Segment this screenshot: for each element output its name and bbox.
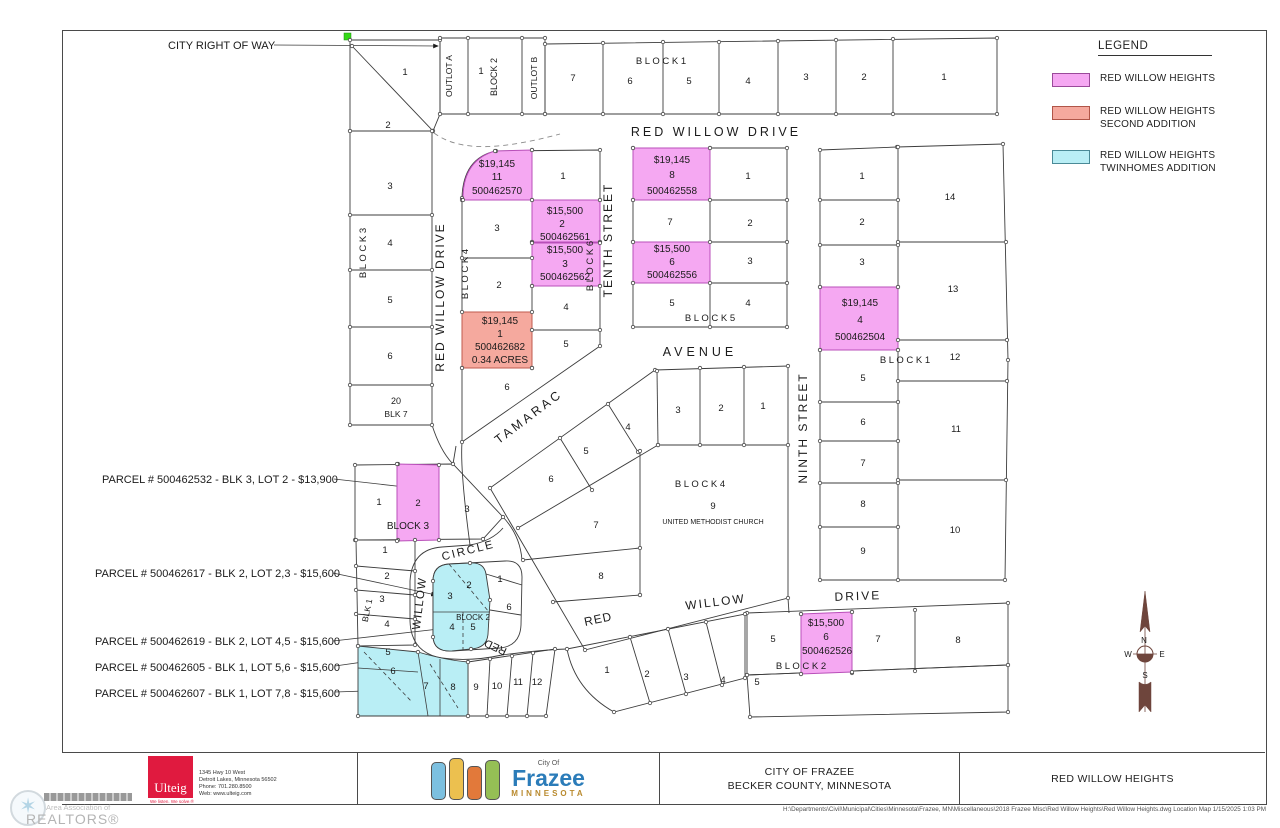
vertex-node <box>748 715 751 718</box>
parcel-id: 500462562 <box>540 272 590 283</box>
vertex-node <box>1004 240 1007 243</box>
vertex-node <box>468 561 471 564</box>
owner-label: UNITED METHODIST CHURCH <box>662 519 763 526</box>
lot-number: 4 <box>745 76 750 87</box>
lot-number: 5 <box>754 677 759 688</box>
realtors-line2: REALTORS® <box>26 811 120 827</box>
vertex-node <box>666 627 669 630</box>
vertex-node <box>460 256 463 259</box>
lot-number: 11 <box>513 677 523 688</box>
frazee-name: Frazee <box>511 767 585 789</box>
vertex-node <box>1004 478 1007 481</box>
vertex-node <box>742 443 745 446</box>
lot-number: 2 <box>644 669 649 680</box>
vertex-node <box>704 620 707 623</box>
vertex-node <box>395 539 398 542</box>
vertex-node <box>437 538 440 541</box>
legend-swatch-cyan <box>1052 150 1090 164</box>
lot-number: 6 <box>627 76 632 87</box>
street-label: RED WILLOW DRIVE <box>631 125 801 139</box>
vertex-node <box>356 644 359 647</box>
vertex-node <box>896 578 899 581</box>
vertex-node <box>850 610 853 613</box>
file-path: H:\Departments\Civil\Municipal\Cities\Mi… <box>783 806 1266 813</box>
lot-number: 4 <box>387 238 392 249</box>
vertex-node <box>598 328 601 331</box>
vertex-node <box>612 710 615 713</box>
parcel-lot: 11 <box>492 172 503 183</box>
lot-number: 2 <box>747 218 752 229</box>
compass-n: N <box>1141 636 1147 645</box>
vertex-node <box>430 383 433 386</box>
vertex-node <box>698 366 701 369</box>
parcel-lot: 1 <box>497 329 503 340</box>
vertex-node <box>638 593 641 596</box>
vertex-node <box>354 538 357 541</box>
lot-number: 6 <box>506 602 511 613</box>
parcel-lot: 6 <box>669 257 675 268</box>
vertex-node <box>896 240 899 243</box>
lot-number: 3 <box>494 223 499 234</box>
parcel-area: 0.34 ACRES <box>472 355 528 366</box>
vertex-node <box>628 635 631 638</box>
vertex-node <box>530 310 533 313</box>
street-label: NINTH STREET <box>796 372 810 483</box>
sheet-title: RED WILLOW HEIGHTS <box>1051 772 1174 786</box>
lot-number: 14 <box>945 192 956 203</box>
street-label: DRIVE <box>834 588 881 604</box>
lot-number: 4 <box>384 619 389 630</box>
vertex-node <box>516 526 519 529</box>
realtors-band <box>44 793 132 801</box>
lot-number: 6 <box>860 417 865 428</box>
parcel-id: 500462526 <box>802 646 852 657</box>
block-label: B L O C K 1 <box>880 355 930 366</box>
legend-label: RED WILLOW HEIGHTS <box>1100 72 1215 85</box>
project-county: BECKER COUNTY, MINNESOTA <box>728 779 892 793</box>
lot-number: 7 <box>570 73 575 84</box>
vertex-node <box>655 369 658 372</box>
vertex-node <box>531 651 534 654</box>
vertex-node <box>551 600 554 603</box>
lot-number: 7 <box>667 217 672 228</box>
lot-number: 3 <box>675 405 680 416</box>
vertex-node <box>717 112 720 115</box>
lot-number: 3 <box>803 72 808 83</box>
vertex-node <box>818 285 821 288</box>
vertex-node <box>466 714 469 717</box>
parcel-callout: PARCEL # 500462619 - BLK 2, LOT 4,5 - $1… <box>95 636 340 648</box>
parcel-callout: PARCEL # 500462605 - BLK 1, LOT 5,6 - $1… <box>95 662 340 674</box>
vertex-node <box>818 348 821 351</box>
vertex-node <box>544 714 547 717</box>
vertex-node <box>896 525 899 528</box>
vertex-node <box>590 488 593 491</box>
lot-number: 2 <box>385 120 390 131</box>
vertex-node <box>466 36 469 39</box>
ulteig-logo: Ulteig <box>148 756 193 798</box>
lot-number: 5 <box>669 298 674 309</box>
vertex-node <box>348 213 351 216</box>
lot-number: 5 <box>470 622 475 633</box>
vertex-node <box>896 198 899 201</box>
vertex-node <box>601 41 604 44</box>
parcel-price: $19,145 <box>654 155 691 166</box>
vertex-node <box>708 146 711 149</box>
vertex-node <box>543 112 546 115</box>
outlot-label: OUTLOT B <box>529 56 539 99</box>
lot-number: 10 <box>950 525 961 536</box>
vertex-node <box>348 325 351 328</box>
logo-bar-road <box>449 758 464 800</box>
vertex-node <box>510 654 513 657</box>
vertex-node <box>708 281 711 284</box>
vertex-node <box>799 612 802 615</box>
lot-number: 13 <box>948 284 959 295</box>
lot-number: 1 <box>376 497 381 508</box>
vertex-node <box>354 588 357 591</box>
compass-w: W <box>1124 650 1132 659</box>
vertex-node <box>776 39 779 42</box>
legend-label: RED WILLOW HEIGHTS TWINHOMES ADDITION <box>1100 149 1216 175</box>
lot-number: 2 <box>496 280 501 291</box>
parcel-id: 500462558 <box>647 186 697 197</box>
vertex-node <box>525 714 528 717</box>
parcel-price: $15,500 <box>547 206 584 217</box>
ulteig-address: 1345 Hwy 10 West Detroit Lakes, Minnesot… <box>199 770 277 798</box>
block-label: B L O C K 5 <box>685 313 735 324</box>
vertex-node <box>395 462 398 465</box>
vertex-node <box>488 657 491 660</box>
block-label: B L O C K 3 <box>358 228 369 278</box>
vertex-node <box>413 643 416 646</box>
lot-number: 3 <box>747 256 752 267</box>
parcel-lot: 6 <box>823 632 829 643</box>
vertex-node <box>530 241 533 244</box>
legend-item-red-willow-heights: RED WILLOW HEIGHTS <box>1052 72 1237 87</box>
vertex-node <box>1003 578 1006 581</box>
vertex-node <box>413 538 416 541</box>
compass-s: S <box>1142 671 1147 680</box>
vertex-node <box>451 462 454 465</box>
vertex-node <box>896 400 899 403</box>
vertex-node <box>1006 358 1009 361</box>
lot-number: 4 <box>449 622 454 633</box>
vertex-node <box>565 647 568 650</box>
block-label: BLOCK 2 <box>456 613 490 622</box>
lot-number: 2 <box>466 580 471 591</box>
title-cell-project: CITY OF FRAZEE BECKER COUNTY, MINNESOTA <box>660 753 960 804</box>
vertex-node <box>461 198 464 201</box>
parcel-callout: PARCEL # 500462617 - BLK 2, LOT 2,3 - $1… <box>95 568 340 580</box>
lot-number: 5 <box>770 634 775 645</box>
street-label: WILLOW <box>411 577 429 631</box>
vertex-node <box>913 669 916 672</box>
logo-bar-leaf <box>485 760 500 800</box>
vertex-node <box>818 198 821 201</box>
vertex-node <box>543 42 546 45</box>
vertex-node <box>488 486 491 489</box>
plat-map-sheet: CITY RIGHT OF WAYPARCEL # 500462532 - BL… <box>0 0 1280 828</box>
vertex-node <box>430 213 433 216</box>
title-cell-frazee-logo: City Of Frazee MINNESOTA <box>358 753 660 804</box>
lot-number: 6 <box>548 474 553 485</box>
lot-number: 11 <box>951 424 961 435</box>
lot-number: 3 <box>387 181 392 192</box>
vertex-node <box>598 344 601 347</box>
vertex-node <box>485 714 488 717</box>
street-label: WILLOW <box>685 591 747 612</box>
vertex-node <box>598 148 601 151</box>
vertex-node <box>818 578 821 581</box>
vertex-node <box>785 240 788 243</box>
vertex-node <box>785 146 788 149</box>
vertex-node <box>1006 663 1009 666</box>
vertex-node <box>431 579 434 582</box>
parcel-callout: PARCEL # 500462532 - BLK 3, LOT 2 - $13,… <box>102 474 338 486</box>
title-cell-sheet-title: RED WILLOW HEIGHTS <box>960 753 1265 804</box>
vertex-node <box>818 525 821 528</box>
lot-number: 1 <box>478 66 483 77</box>
street-label: CIRCLE <box>441 539 496 564</box>
vertex-node <box>530 148 533 151</box>
lot-number: 1 <box>859 171 864 182</box>
vertex-node <box>413 617 416 620</box>
lot-number: 3 <box>379 594 384 605</box>
logo-bar-buildings <box>467 766 482 800</box>
vertex-node <box>818 148 821 151</box>
vertex-node <box>708 325 711 328</box>
lot-number: 8 <box>598 571 603 582</box>
vertex-node <box>413 593 416 596</box>
parcel-price: $19,145 <box>482 316 519 327</box>
lot-number: 2 <box>415 498 420 509</box>
vertex-node <box>799 672 802 675</box>
legend-item-twinhomes-addition: RED WILLOW HEIGHTS TWINHOMES ADDITION <box>1052 149 1237 175</box>
parcel-lot: 3 <box>562 259 568 270</box>
lot-number: 20 <box>391 396 401 406</box>
vertex-node <box>743 676 746 679</box>
vertex-node <box>469 647 472 650</box>
ulteig-tagline: We listen. We solve.® <box>150 799 194 804</box>
parcel-id: 500462556 <box>647 270 697 281</box>
vertex-node <box>818 400 821 403</box>
parcel-id: 500462504 <box>835 332 885 343</box>
lot-number: 9 <box>710 501 715 512</box>
parcel-id: 500462570 <box>472 186 522 197</box>
vertex-node <box>553 647 556 650</box>
vertex-node <box>1001 142 1004 145</box>
vertex-node <box>785 325 788 328</box>
parcel-lot: 2 <box>559 219 565 230</box>
realtors-watermark: ✶ Area Association of REALTORS® <box>8 786 138 826</box>
lot-number: 1 <box>941 72 946 83</box>
parcel-lot: 4 <box>857 315 863 326</box>
vertex-node <box>708 240 711 243</box>
vertex-node <box>661 40 664 43</box>
vertex-node <box>896 338 899 341</box>
vertex-node <box>786 596 789 599</box>
parcel-price: $15,500 <box>808 618 845 629</box>
vertex-node <box>348 129 351 132</box>
lot-number: 2 <box>859 217 864 228</box>
project-city: CITY OF FRAZEE <box>765 765 855 779</box>
lot-number: 8 <box>450 682 455 693</box>
lot-number: 8 <box>860 499 865 510</box>
parcel-callout: PARCEL # 500462607 - BLK 1, LOT 7,8 - $1… <box>95 688 340 700</box>
vertex-node <box>818 439 821 442</box>
vertex-node <box>834 38 837 41</box>
lot-number: 7 <box>423 681 428 692</box>
lot-number: 5 <box>385 647 390 658</box>
vertex-node <box>684 692 687 695</box>
vertex-node <box>437 463 440 466</box>
street-label: AVENUE <box>663 345 737 359</box>
vertex-node <box>656 443 659 446</box>
vertex-node <box>708 198 711 201</box>
vertex-node <box>413 569 416 572</box>
vertex-node <box>466 112 469 115</box>
lot-number: 2 <box>384 571 389 582</box>
vertex-node <box>786 443 789 446</box>
legend-title: LEGEND <box>1098 40 1212 56</box>
block-label: B L O C K 1 <box>636 56 686 67</box>
legend-swatch-magenta <box>1052 73 1090 87</box>
lot-number: 7 <box>875 634 880 645</box>
vertex-node <box>661 112 664 115</box>
vertex-node <box>601 112 604 115</box>
callout-city-right-of-way: CITY RIGHT OF WAY <box>168 40 276 52</box>
lot-number: 6 <box>504 382 509 393</box>
vertex-node <box>598 241 601 244</box>
block-label: B L O C K 2 <box>776 661 826 672</box>
frazee-state: MINNESOTA <box>511 789 585 798</box>
lot-number: 6 <box>390 666 395 677</box>
vertex-node <box>521 558 524 561</box>
lot-number: 5 <box>583 446 588 457</box>
vertex-node <box>438 112 441 115</box>
vertex-node <box>631 240 634 243</box>
block-label: BLOCK 3 <box>387 521 430 532</box>
block-label: B L O C K 4 <box>675 479 725 490</box>
vertex-node <box>505 714 508 717</box>
vertex-node <box>631 281 634 284</box>
vertex-node <box>356 714 359 717</box>
vertex-node <box>776 112 779 115</box>
parcel-price: $19,145 <box>479 159 516 170</box>
parcel-id: 500462561 <box>540 232 590 243</box>
vertex-node <box>631 325 634 328</box>
lot-number: 7 <box>593 520 598 531</box>
vertex-node <box>430 325 433 328</box>
compass-rose <box>1133 591 1157 712</box>
vertex-node <box>786 364 789 367</box>
legend: LEGEND RED WILLOW HEIGHTS RED WILLOW HEI… <box>1052 40 1237 175</box>
lot-number: 1 <box>382 545 387 556</box>
vertex-node <box>543 36 546 39</box>
legend-swatch-salmon <box>1052 106 1090 120</box>
lot-number: 2 <box>718 403 723 414</box>
vertex-node <box>631 146 634 149</box>
vertex-node <box>896 478 899 481</box>
vertex-node <box>631 198 634 201</box>
vertex-node <box>891 112 894 115</box>
parcel-price: $15,500 <box>547 245 584 256</box>
vertex-node <box>785 198 788 201</box>
vertex-node <box>350 44 353 47</box>
block-label: BLK 7 <box>384 409 407 419</box>
street-label: RED WILLOW DRIVE <box>433 222 447 371</box>
vertex-node <box>896 285 899 288</box>
parcel-lot: 8 <box>669 170 675 181</box>
block-label: BLOCK 2 <box>489 58 499 96</box>
lot-number: 4 <box>625 422 630 433</box>
title-block: Ulteig 1345 Hwy 10 West Detroit Lakes, M… <box>62 752 1265 804</box>
vertex-node <box>834 112 837 115</box>
outlot-label: OUTLOT A <box>444 55 454 97</box>
vertex-node <box>430 129 433 132</box>
vertex-node <box>583 648 586 651</box>
vertex-node <box>818 481 821 484</box>
vertex-node <box>493 149 496 152</box>
vertex-node <box>606 402 609 405</box>
lot-number: 1 <box>745 171 750 182</box>
lot-number: 1 <box>560 171 565 182</box>
vertex-node <box>850 670 853 673</box>
vertex-node <box>698 443 701 446</box>
vertex-node <box>416 650 419 653</box>
vertex-node <box>353 463 356 466</box>
vertex-node <box>520 112 523 115</box>
lot-number: 5 <box>387 295 392 306</box>
vertex-node <box>354 564 357 567</box>
logo-bar-water <box>431 762 446 800</box>
vertex-node <box>638 449 641 452</box>
lot-number: 3 <box>464 504 469 515</box>
vertex-node <box>348 38 351 41</box>
vertex-node <box>598 284 601 287</box>
vertex-node <box>530 366 533 369</box>
vertex-node <box>1005 379 1008 382</box>
lot-number: 10 <box>492 681 503 692</box>
parcel-linework <box>274 38 1008 717</box>
lot-number: 9 <box>860 546 865 557</box>
legend-item-second-addition: RED WILLOW HEIGHTS SECOND ADDITION <box>1052 105 1237 131</box>
vertex-node <box>896 439 899 442</box>
lot-number: 3 <box>683 672 688 683</box>
vertex-node <box>501 515 504 518</box>
vertex-node <box>638 546 641 549</box>
vertex-node <box>430 423 433 426</box>
vertex-node <box>717 40 720 43</box>
lot-number: 5 <box>686 76 691 87</box>
vertex-node <box>598 198 601 201</box>
lot-number: 5 <box>563 339 568 350</box>
vertex-node <box>460 366 463 369</box>
vertex-node <box>995 112 998 115</box>
lot-number: 8 <box>955 635 960 646</box>
lot-number: 3 <box>447 591 452 602</box>
lot-number: 9 <box>473 682 478 693</box>
vertex-node <box>348 383 351 386</box>
lot-number: 2 <box>861 72 866 83</box>
vertex-node <box>896 379 899 382</box>
vertex-node <box>348 423 351 426</box>
lot-number: 1 <box>402 67 407 78</box>
vertex-node <box>488 598 491 601</box>
street-label: RED <box>483 636 509 657</box>
lot-number: 1 <box>497 574 502 585</box>
